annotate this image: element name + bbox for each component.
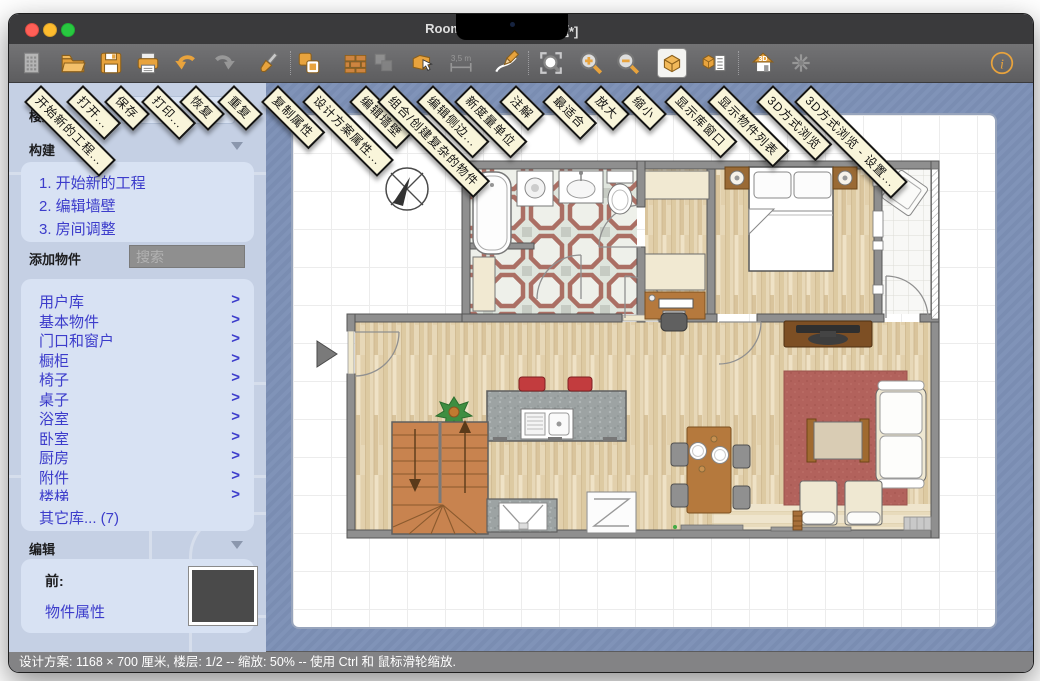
app-window: Room 题*] 3,5 m3Di 开始新的工程...打开...保存打印...恢…	[8, 13, 1034, 673]
zoom-out-icon	[615, 50, 641, 76]
library-item-橱柜[interactable]: 橱柜>	[39, 350, 242, 369]
group-create-complex-button	[370, 49, 398, 77]
info-icon: i	[989, 50, 1015, 76]
annotation-button[interactable]	[492, 49, 520, 77]
show-library-window-button[interactable]	[657, 48, 687, 78]
open-icon	[60, 50, 86, 76]
show-object-list-icon	[701, 50, 727, 76]
library-item-label: 桌子	[39, 392, 69, 409]
library-item-附件[interactable]: 附件>	[39, 467, 242, 486]
toolbar-separator	[738, 51, 739, 75]
chevron-right-icon: >	[231, 428, 240, 445]
build-step-link-1[interactable]: 1. 开始新的工程	[39, 172, 146, 193]
washing-machine[interactable]	[517, 171, 553, 206]
kitchen-island[interactable]	[487, 391, 626, 441]
svg-text:3,5 m: 3,5 m	[451, 54, 472, 63]
sidebar: 楼层 构建 1. 开始新的工程2. 编辑墙壁3. 房间调整 添加物件 用户库>基…	[9, 82, 266, 652]
undo-icon	[173, 50, 199, 76]
new-measurement-icon: 3,5 m	[448, 50, 474, 76]
double-bed[interactable]	[749, 167, 833, 271]
zoom-fit-icon	[538, 50, 564, 76]
chevron-right-icon: >	[231, 369, 240, 386]
library-item-楼梯[interactable]: 楼梯>	[39, 486, 242, 501]
print-button[interactable]	[134, 49, 162, 77]
library-item-label: 楼梯	[39, 489, 69, 501]
build-step-link-2[interactable]: 2. 编辑墙壁	[39, 195, 116, 216]
edit-panel: 前: 物件属性	[21, 559, 254, 633]
toolbar: 3,5 m3Di	[9, 44, 1033, 83]
compass-icon	[386, 168, 428, 210]
sofa[interactable]	[876, 381, 926, 488]
edit-collapse-icon[interactable]	[231, 541, 243, 549]
build-section-header: 构建	[29, 140, 55, 159]
office-chair[interactable]	[661, 313, 687, 331]
redo-button	[210, 49, 238, 77]
print-icon	[135, 50, 161, 76]
build-step-link-3[interactable]: 3. 房间调整	[39, 218, 116, 239]
close-window-button[interactable]	[25, 23, 39, 37]
library-item-label: 门口和窗户	[39, 333, 114, 350]
library-item-卧室[interactable]: 卧室>	[39, 428, 242, 447]
zoom-fit-button[interactable]	[537, 49, 565, 77]
wardrobe-2[interactable]	[645, 254, 705, 290]
toolbar-separator	[528, 51, 529, 75]
object-library-panel: 用户库>基本物件>门口和窗户>橱柜>椅子>桌子>浴室>卧室>厨房>附件>楼梯> …	[21, 279, 254, 531]
title-bar: Room 题*]	[9, 14, 1033, 45]
show-object-list-button[interactable]	[700, 49, 728, 77]
library-item-label: 卧室	[39, 431, 69, 448]
save-icon	[98, 50, 124, 76]
toolbar-separator	[290, 51, 291, 75]
new-project-icon	[18, 50, 44, 76]
chevron-right-icon: >	[231, 467, 240, 484]
kitchen-counter[interactable]	[487, 499, 557, 532]
color-swatch[interactable]	[189, 567, 257, 625]
refrigerator[interactable]	[587, 492, 636, 533]
bathroom-cabinet[interactable]	[473, 257, 495, 311]
minimize-window-button[interactable]	[43, 23, 57, 37]
undo-button[interactable]	[172, 49, 200, 77]
zoom-in-icon	[578, 50, 604, 76]
new-measurement-button: 3,5 m	[447, 49, 475, 77]
zoom-out-button[interactable]	[614, 49, 642, 77]
add-objects-header: 添加物件	[29, 249, 81, 268]
library-item-label: 基本物件	[39, 314, 99, 331]
svg-text:i: i	[1000, 56, 1004, 72]
dining-table[interactable]	[687, 427, 731, 513]
3d-view-settings-button	[787, 49, 815, 77]
edit-section-header: 编辑	[29, 539, 55, 558]
info-button[interactable]: i	[988, 49, 1016, 77]
object-library-list: 用户库>基本物件>门口和窗户>橱柜>椅子>桌子>浴室>卧室>厨房>附件>楼梯>	[21, 283, 254, 501]
chevron-right-icon: >	[231, 291, 240, 308]
chevron-right-icon: >	[231, 389, 240, 406]
library-item-椅子[interactable]: 椅子>	[39, 369, 242, 388]
group-create-complex-icon	[371, 50, 397, 76]
library-item-用户库[interactable]: 用户库>	[39, 291, 242, 310]
library-item-label: 附件	[39, 470, 69, 487]
show-library-window-icon	[659, 50, 685, 76]
coffee-table[interactable]	[807, 419, 869, 462]
build-steps-panel: 1. 开始新的工程2. 编辑墙壁3. 房间调整	[21, 162, 254, 242]
library-item-桌子[interactable]: 桌子>	[39, 389, 242, 408]
zoom-in-button[interactable]	[577, 49, 605, 77]
library-item-label: 用户库	[39, 294, 84, 311]
chevron-right-icon: >	[231, 447, 240, 464]
edit-sides-icon	[410, 50, 436, 76]
entrance-marker	[317, 341, 337, 367]
other-libraries-link[interactable]: 其它库... (7)	[39, 507, 119, 528]
chevron-right-icon: >	[231, 486, 240, 501]
3d-view-icon: 3D	[750, 50, 776, 76]
chevron-right-icon: >	[231, 408, 240, 425]
save-button[interactable]	[97, 49, 125, 77]
3d-view-button[interactable]: 3D	[749, 49, 777, 77]
new-project-button	[17, 49, 45, 77]
edit-walls-icon	[343, 50, 369, 76]
edit-walls-button[interactable]	[342, 49, 370, 77]
toilet[interactable]	[607, 171, 633, 214]
build-collapse-icon[interactable]	[231, 142, 243, 150]
3d-view-settings-icon	[788, 50, 814, 76]
copy-properties-button[interactable]	[254, 49, 282, 77]
staircase[interactable]	[392, 420, 488, 534]
status-bar: 设计方案: 1168 × 700 厘米, 楼层: 1/2 -- 缩放: 50% …	[9, 651, 1033, 672]
library-item-门口和窗户[interactable]: 门口和窗户>	[39, 330, 242, 349]
edit-sides-button[interactable]	[409, 49, 437, 77]
camera-notch	[456, 14, 568, 40]
library-item-label: 厨房	[39, 450, 69, 467]
library-item-厨房[interactable]: 厨房>	[39, 447, 242, 466]
library-item-label: 椅子	[39, 372, 69, 389]
status-text: 设计方案: 1168 × 700 厘米, 楼层: 1/2 -- 缩放: 50% …	[19, 655, 456, 669]
open-button[interactable]	[59, 49, 87, 77]
chevron-right-icon: >	[231, 330, 240, 347]
chevron-right-icon: >	[231, 350, 240, 367]
camera-dot	[510, 22, 515, 27]
redo-icon	[211, 50, 237, 76]
project-properties-button[interactable]	[295, 49, 323, 77]
object-properties-link[interactable]: 物件属性	[45, 601, 105, 622]
tv-console[interactable]	[784, 321, 872, 347]
wardrobe[interactable]	[645, 171, 709, 199]
svg-text:3D: 3D	[759, 56, 768, 63]
window-title-left: Room	[404, 21, 462, 36]
annotation-icon	[493, 50, 519, 76]
zoom-window-button[interactable]	[61, 23, 75, 37]
library-item-浴室[interactable]: 浴室>	[39, 408, 242, 427]
library-item-label: 橱柜	[39, 353, 69, 370]
library-item-label: 浴室	[39, 411, 69, 428]
search-input[interactable]	[129, 245, 245, 268]
copy-properties-icon	[255, 50, 281, 76]
project-properties-icon	[296, 50, 322, 76]
chevron-right-icon: >	[231, 311, 240, 328]
bathroom-sink[interactable]	[559, 171, 603, 203]
front-label: 前:	[45, 571, 64, 591]
library-item-基本物件[interactable]: 基本物件>	[39, 311, 242, 330]
